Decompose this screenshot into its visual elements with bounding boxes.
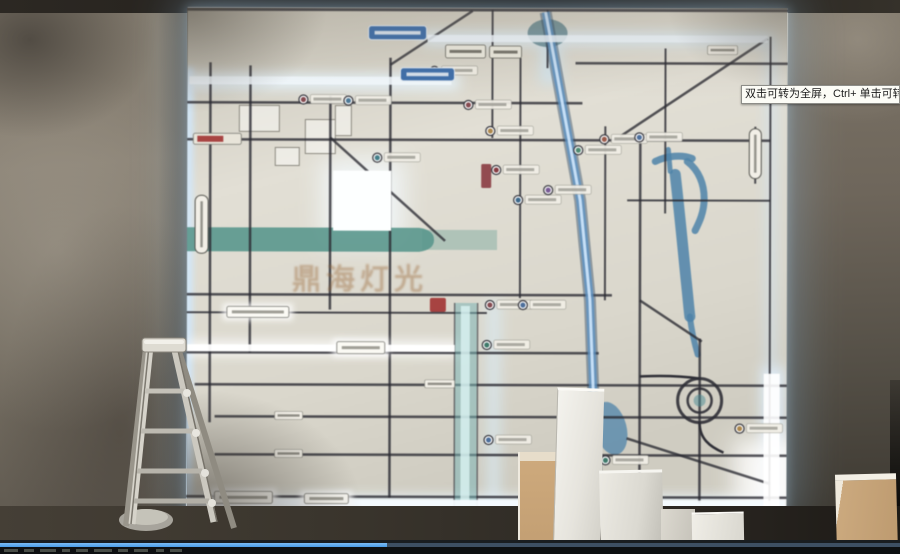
wall-right — [768, 0, 900, 554]
poi-icon-dot — [488, 128, 493, 133]
model-block-tan-left — [518, 452, 558, 554]
poi-icon-dot — [486, 437, 491, 442]
control-bar-remnant — [76, 549, 88, 552]
poi-icon-dot — [346, 98, 351, 103]
video-control-bar[interactable] — [0, 547, 900, 554]
metro-sign-text — [375, 31, 421, 35]
road-label-text — [277, 452, 299, 454]
building-footprint — [239, 105, 279, 131]
road-label-text — [342, 346, 380, 349]
poi-icon-dot — [494, 167, 499, 172]
poi-icon-dot — [602, 137, 607, 142]
poi-label-text — [558, 188, 586, 191]
red-label-text — [197, 136, 223, 142]
poi-icon-dot — [375, 155, 380, 160]
poi-label-text — [497, 343, 525, 346]
poi-label-text — [478, 103, 506, 106]
poi-icon-dot — [487, 302, 492, 307]
vertical-road-label-text — [754, 135, 756, 173]
step-ladder — [116, 336, 244, 534]
road — [491, 10, 493, 138]
led-glow-core — [428, 35, 768, 43]
river-east — [668, 149, 670, 171]
control-bar-remnant — [4, 549, 18, 552]
control-bar-remnant — [62, 549, 70, 552]
led-glow-core — [333, 171, 391, 231]
illuminated-map-display — [186, 7, 787, 513]
poi-label-text — [387, 156, 415, 159]
poi-icon-dot — [301, 97, 306, 102]
road-label-text — [711, 49, 735, 51]
red-vertical-sign — [481, 164, 491, 188]
red-marker — [430, 298, 446, 312]
fullscreen-tooltip: 双击可转为全屏，Ctrl+ 单击可转为 — [741, 85, 900, 104]
poi-icon-dot — [737, 426, 742, 431]
poi-label-text — [500, 129, 528, 132]
poi-label-text — [615, 458, 643, 461]
road — [627, 199, 770, 201]
control-bar-remnant — [134, 549, 148, 552]
control-bar-remnant — [94, 549, 112, 552]
poi-icon-dot — [516, 197, 521, 202]
map-artwork — [186, 7, 787, 513]
road-label-text — [309, 497, 343, 500]
road-label-text — [428, 383, 452, 385]
video-frame[interactable]: 鼎海灯光 双击可转为全屏，Ctrl+ 单击可转为 — [0, 0, 900, 554]
control-bar-remnant — [24, 549, 34, 552]
river-west — [187, 227, 434, 252]
poi-icon-dot — [603, 458, 608, 463]
metro-sign-text — [406, 72, 448, 76]
building-footprint — [335, 106, 351, 136]
poi-label-text — [528, 198, 556, 201]
poi-label-text — [313, 98, 341, 101]
road-sign-text — [450, 50, 482, 53]
building-footprint — [275, 147, 299, 165]
poi-label-text — [506, 168, 534, 171]
road-label-text — [232, 310, 284, 313]
poi-icon-dot — [576, 148, 581, 153]
led-glow-core — [763, 374, 779, 509]
poi-icon-dot — [637, 135, 642, 140]
poi-icon-dot — [484, 342, 489, 347]
teal-road-core — [460, 306, 470, 506]
poi-label-text — [588, 148, 616, 151]
poi-label-text — [533, 303, 561, 306]
poi-icon-dot — [466, 102, 471, 107]
led-glow — [486, 300, 501, 506]
river-west-extension — [422, 230, 497, 250]
control-bar-remnant — [118, 549, 128, 552]
poi-icon-dot — [546, 188, 551, 193]
poi-label-text — [499, 438, 527, 441]
poi-label-text — [649, 135, 677, 138]
interchange-center — [694, 395, 706, 407]
road-label-text — [278, 414, 300, 416]
vertical-road-label-text — [200, 201, 203, 247]
poi-label-text — [750, 427, 778, 430]
road-sign-text — [494, 51, 518, 54]
control-bar-remnant — [156, 549, 164, 552]
poi-icon-dot — [520, 302, 525, 307]
poi-label-text — [358, 99, 386, 102]
control-bar-remnant — [170, 549, 182, 552]
control-bar-remnant — [40, 549, 56, 552]
model-block-tall — [553, 387, 605, 554]
